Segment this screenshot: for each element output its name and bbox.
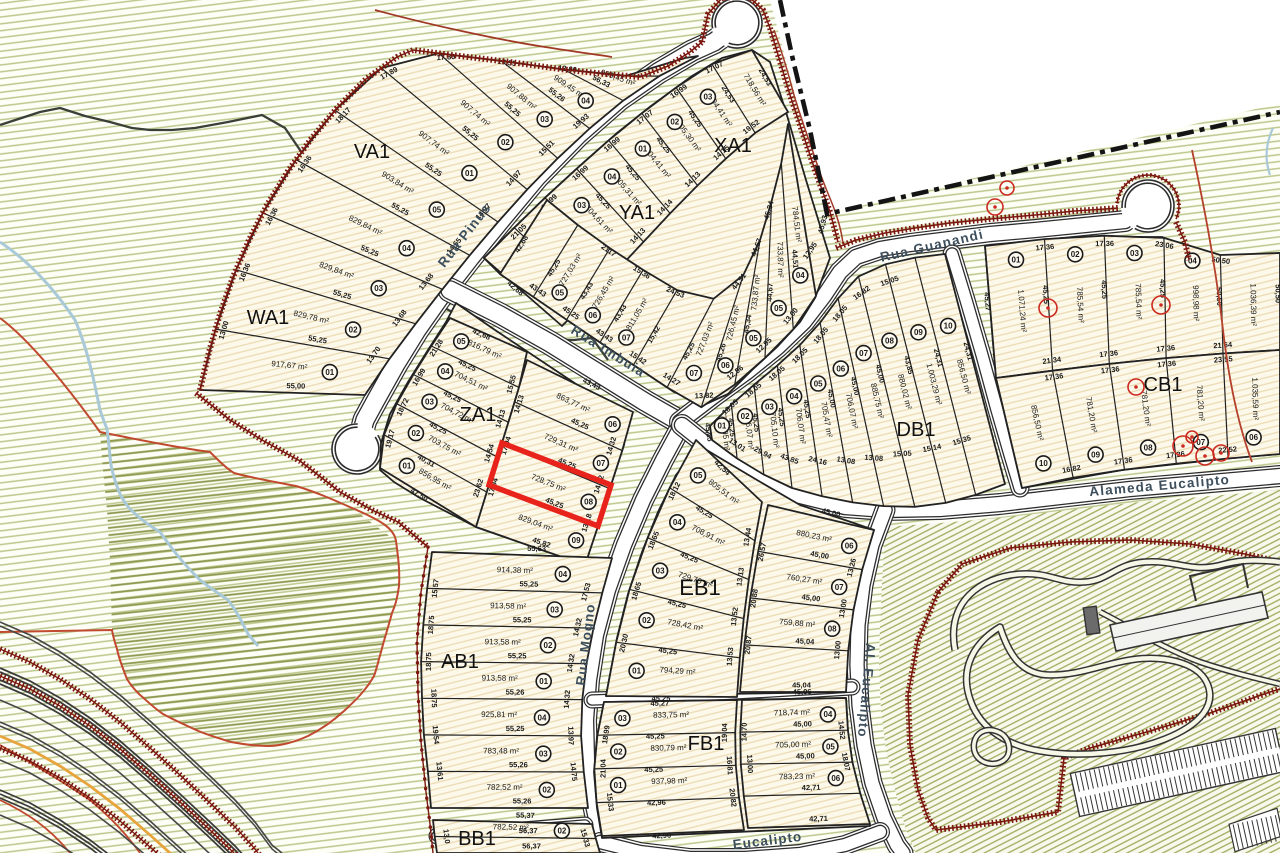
svg-text:18,75: 18,75	[426, 615, 437, 634]
svg-text:15,05: 15,05	[893, 449, 912, 459]
svg-text:CB1: CB1	[1144, 374, 1183, 396]
svg-text:783,48 m²: 783,48 m²	[483, 746, 519, 755]
svg-text:13,61: 13,61	[434, 761, 445, 781]
svg-text:04: 04	[441, 367, 450, 376]
svg-text:913,58 m²: 913,58 m²	[485, 637, 521, 647]
svg-text:785,54 m²: 785,54 m²	[1133, 283, 1143, 320]
svg-text:03: 03	[703, 93, 712, 102]
svg-text:03: 03	[550, 605, 559, 614]
svg-text:03: 03	[1130, 249, 1139, 258]
svg-text:785,54 m²: 785,54 m²	[1075, 287, 1086, 324]
svg-text:45,00: 45,00	[796, 751, 815, 760]
svg-text:04: 04	[558, 570, 567, 579]
svg-text:937,98 m²: 937,98 m²	[651, 776, 688, 786]
svg-text:17,36: 17,36	[1157, 359, 1177, 370]
svg-text:03: 03	[577, 201, 586, 210]
svg-text:XA1: XA1	[714, 135, 752, 157]
svg-text:16,81: 16,81	[725, 756, 735, 775]
svg-text:02: 02	[544, 641, 553, 650]
svg-text:925,81 m²: 925,81 m²	[481, 710, 517, 719]
svg-text:10: 10	[944, 322, 953, 331]
svg-text:55,26: 55,26	[509, 760, 528, 769]
svg-text:FB1: FB1	[688, 733, 725, 755]
svg-text:01: 01	[717, 421, 726, 430]
svg-text:03: 03	[540, 115, 549, 124]
svg-text:06: 06	[1249, 433, 1258, 442]
svg-text:45,27: 45,27	[982, 292, 993, 311]
svg-text:23,55: 23,55	[1214, 354, 1233, 364]
svg-text:ZA1: ZA1	[460, 404, 497, 426]
svg-text:17,36: 17,36	[1095, 239, 1114, 248]
svg-text:04: 04	[673, 518, 682, 527]
svg-text:04: 04	[607, 172, 616, 181]
svg-text:06: 06	[845, 542, 854, 551]
svg-text:13,00: 13,00	[745, 754, 755, 773]
svg-text:913,58 m²: 913,58 m²	[482, 674, 518, 683]
svg-text:02: 02	[557, 827, 566, 836]
svg-text:AB1: AB1	[441, 651, 479, 673]
svg-text:718,74 m²: 718,74 m²	[774, 708, 811, 718]
svg-text:EB1: EB1	[679, 575, 721, 600]
svg-text:14,75: 14,75	[569, 762, 580, 782]
svg-text:42,71: 42,71	[809, 814, 828, 824]
svg-text:02: 02	[614, 747, 623, 756]
svg-text:1.036,39 m²: 1.036,39 m²	[1249, 283, 1259, 326]
svg-text:02: 02	[411, 429, 420, 438]
svg-text:05: 05	[749, 334, 758, 343]
svg-text:55,25: 55,25	[508, 651, 527, 660]
svg-text:08: 08	[1144, 443, 1153, 452]
svg-text:07: 07	[689, 369, 698, 378]
svg-text:03: 03	[656, 567, 665, 576]
svg-text:45,25: 45,25	[644, 765, 663, 774]
svg-text:01: 01	[402, 462, 411, 471]
svg-text:08: 08	[828, 625, 837, 634]
svg-text:02: 02	[670, 118, 679, 127]
svg-text:02: 02	[642, 616, 651, 625]
svg-text:55,00: 55,00	[286, 381, 305, 391]
svg-text:42,71: 42,71	[802, 783, 821, 792]
svg-text:17,36: 17,36	[1035, 242, 1054, 253]
svg-text:01: 01	[614, 781, 623, 790]
svg-text:45,25: 45,25	[1100, 280, 1110, 299]
svg-text:05: 05	[457, 337, 466, 346]
svg-text:05: 05	[432, 205, 441, 214]
svg-text:830,79 m²: 830,79 m²	[650, 743, 687, 753]
svg-text:913,58 m²: 913,58 m²	[490, 601, 527, 611]
svg-text:55,25: 55,25	[506, 724, 525, 733]
svg-text:VA1: VA1	[354, 141, 390, 163]
svg-text:18,75: 18,75	[424, 652, 433, 671]
svg-text:BB1: BB1	[458, 828, 496, 850]
svg-text:01: 01	[465, 169, 474, 178]
svg-text:05: 05	[814, 379, 823, 388]
svg-text:02: 02	[501, 138, 510, 147]
svg-text:13,00: 13,00	[832, 640, 843, 660]
svg-text:13,82: 13,82	[695, 391, 714, 401]
svg-text:55,25: 55,25	[513, 615, 532, 624]
svg-text:07: 07	[596, 459, 605, 468]
svg-text:WA1: WA1	[247, 307, 290, 329]
svg-text:45,25: 45,25	[1158, 279, 1167, 298]
svg-text:03: 03	[539, 750, 548, 759]
svg-text:01: 01	[1012, 256, 1021, 265]
svg-text:21,04: 21,04	[598, 758, 607, 778]
svg-text:13,53: 13,53	[725, 647, 736, 666]
svg-text:01: 01	[325, 368, 334, 377]
svg-text:13,0: 13,0	[441, 829, 452, 845]
svg-text:07: 07	[835, 583, 844, 592]
svg-text:733,87 m²: 733,87 m²	[775, 242, 785, 279]
svg-text:42,96: 42,96	[652, 831, 671, 841]
svg-text:44,51: 44,51	[790, 249, 800, 268]
svg-text:10: 10	[1039, 459, 1048, 468]
svg-text:705,00 m²: 705,00 m²	[775, 740, 812, 750]
svg-text:45,06: 45,06	[793, 687, 812, 696]
svg-text:13,97: 13,97	[566, 726, 575, 745]
svg-text:02: 02	[349, 325, 358, 334]
svg-text:55,25: 55,25	[519, 579, 538, 588]
svg-text:783,23 m²: 783,23 m²	[779, 772, 816, 782]
svg-text:782,52 m²: 782,52 m²	[487, 783, 523, 792]
svg-text:03: 03	[374, 284, 383, 293]
svg-text:01: 01	[632, 667, 641, 676]
svg-text:14,32: 14,32	[562, 690, 572, 709]
svg-text:04: 04	[402, 244, 411, 253]
svg-text:YA1: YA1	[619, 202, 655, 224]
svg-text:04: 04	[581, 97, 590, 106]
svg-text:06: 06	[831, 774, 840, 783]
svg-text:18,75: 18,75	[429, 689, 439, 708]
svg-text:09: 09	[1091, 450, 1100, 459]
svg-text:13,08: 13,08	[864, 453, 883, 463]
svg-text:42,96: 42,96	[647, 798, 666, 808]
svg-text:45,27: 45,27	[650, 699, 669, 708]
svg-text:09: 09	[914, 328, 923, 337]
svg-text:06: 06	[721, 361, 730, 370]
svg-text:06: 06	[836, 364, 845, 373]
svg-text:17,36: 17,36	[1156, 343, 1176, 354]
svg-text:44,67: 44,67	[765, 283, 775, 302]
svg-text:07: 07	[859, 349, 868, 358]
svg-text:998,98 m²: 998,98 m²	[1191, 285, 1201, 322]
svg-text:55,26: 55,26	[506, 688, 525, 697]
svg-text:56,37: 56,37	[522, 842, 541, 851]
svg-text:08: 08	[584, 498, 593, 507]
svg-text:02: 02	[741, 412, 750, 421]
svg-text:55,37: 55,37	[516, 811, 535, 820]
svg-text:04: 04	[538, 713, 547, 722]
svg-text:45,04: 45,04	[795, 636, 815, 646]
svg-text:05: 05	[555, 288, 564, 297]
svg-text:56,37: 56,37	[519, 826, 538, 835]
svg-text:05: 05	[694, 471, 703, 480]
svg-text:09: 09	[572, 536, 581, 545]
svg-text:04: 04	[796, 271, 805, 280]
svg-text:14,70: 14,70	[740, 722, 749, 741]
svg-text:08: 08	[885, 337, 894, 346]
svg-text:45,00: 45,00	[793, 719, 812, 728]
svg-text:01: 01	[539, 677, 548, 686]
svg-text:03: 03	[765, 403, 774, 412]
svg-text:19,54: 19,54	[431, 725, 442, 745]
svg-text:914,38 m²: 914,38 m²	[497, 565, 534, 575]
svg-text:03: 03	[425, 398, 434, 407]
svg-text:07: 07	[622, 333, 631, 342]
svg-text:02: 02	[1071, 250, 1080, 259]
svg-text:833,75 m²: 833,75 m²	[653, 710, 690, 720]
svg-text:14,52: 14,52	[836, 720, 847, 740]
svg-text:1.035,59 m²: 1.035,59 m²	[1250, 377, 1260, 420]
svg-text:05: 05	[774, 304, 783, 313]
svg-text:04: 04	[823, 710, 832, 719]
svg-text:03: 03	[618, 714, 627, 723]
svg-text:45,25: 45,25	[646, 731, 665, 740]
svg-text:21,64: 21,64	[1213, 340, 1233, 350]
svg-text:50,50: 50,50	[1274, 284, 1280, 303]
svg-text:05: 05	[826, 742, 835, 751]
svg-text:04: 04	[790, 392, 799, 401]
svg-text:55,63: 55,63	[527, 544, 546, 554]
svg-text:04: 04	[1188, 257, 1197, 266]
svg-text:06: 06	[588, 311, 597, 320]
svg-text:02: 02	[542, 786, 551, 795]
svg-text:01: 01	[638, 144, 647, 153]
svg-text:06: 06	[608, 420, 617, 429]
svg-text:DB1: DB1	[897, 419, 936, 441]
svg-text:55,26: 55,26	[513, 797, 532, 806]
